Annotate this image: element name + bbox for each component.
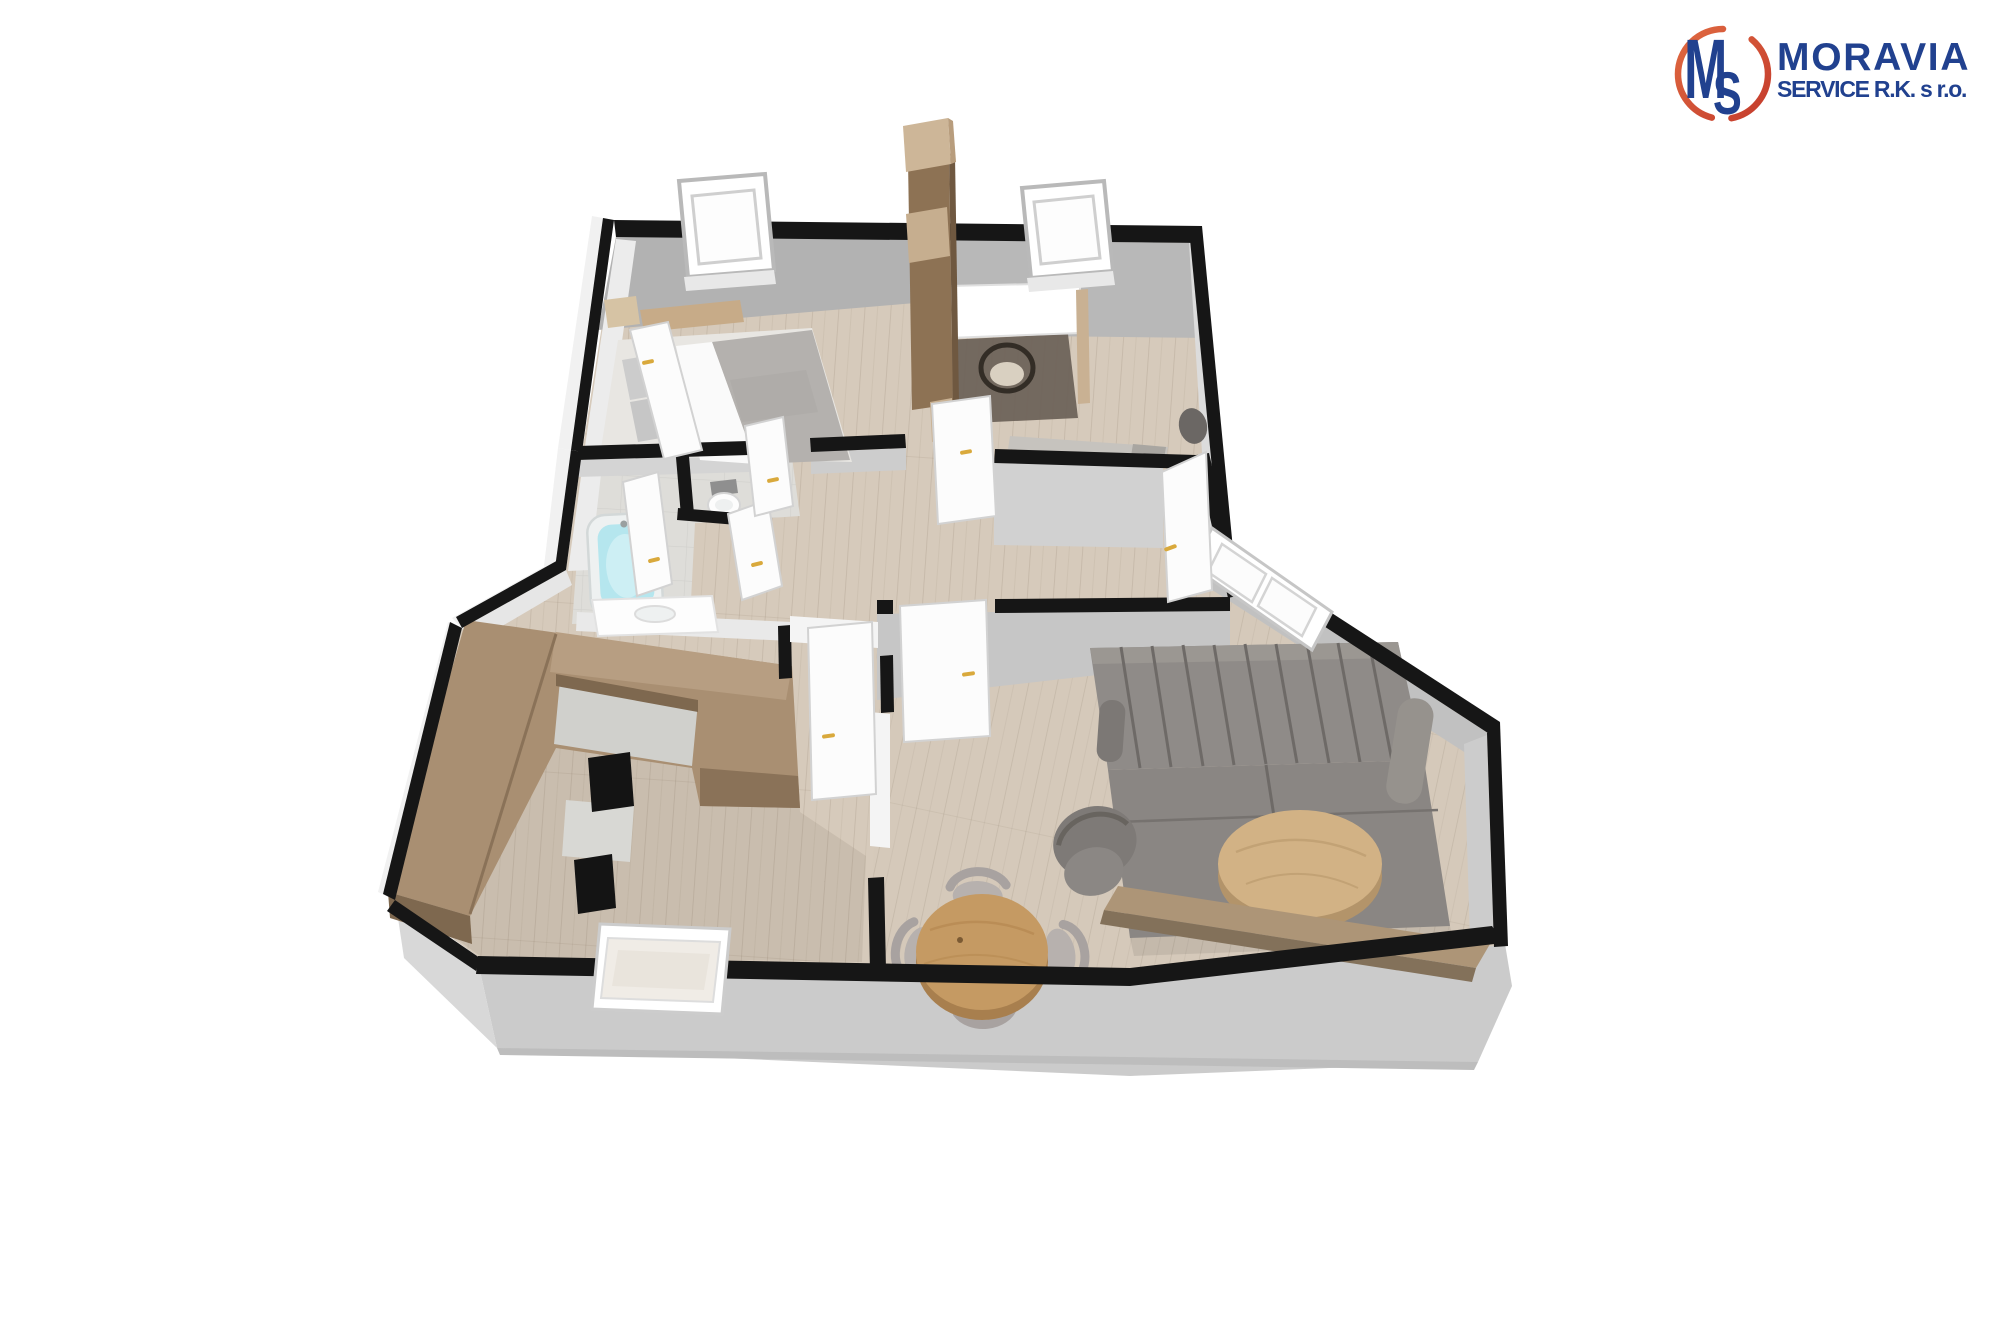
wardrobe-box-top: [903, 118, 951, 172]
door-leaf-kitchen: [808, 622, 876, 800]
nightstand: [604, 296, 640, 328]
dining-table: [916, 894, 1048, 1010]
washbasin: [635, 606, 675, 622]
office-window: [1022, 181, 1115, 292]
desk-side-panel: [1076, 289, 1090, 404]
built-in-oven: [588, 752, 634, 812]
wall-hall-living-a: [877, 600, 893, 614]
door-leaf-office: [1162, 452, 1212, 602]
desk: [948, 283, 1080, 338]
page: M S MORAVIA SERVICE R.K. s r.o.: [0, 0, 2000, 1334]
wall-hall-kitchen-b: [880, 655, 894, 713]
door-leaf-hall-b: [932, 396, 996, 524]
wardrobe-box-mid: [906, 207, 950, 263]
wardrobe-tall: [908, 153, 953, 410]
wall-kitchen-dining: [868, 877, 886, 971]
logo-monogram-s: S: [1713, 61, 1742, 128]
hall-office-face: [994, 463, 1163, 548]
door-leaf-living: [900, 600, 990, 742]
wall-hall-kitchen-a: [778, 625, 792, 679]
bedroom-window: [679, 174, 776, 291]
sofa-arm-pad: [1096, 699, 1126, 763]
logo-subtitle: SERVICE R.K. s r.o.: [1777, 76, 1968, 102]
logo-title: MORAVIA: [1777, 36, 1970, 79]
floorplan-render: M S MORAVIA SERVICE R.K. s r.o.: [0, 0, 2000, 1334]
built-in-appliance: [574, 854, 616, 914]
coffee-table: [1218, 810, 1382, 918]
wall-hall-living-b: [995, 597, 1230, 613]
company-logo: M S MORAVIA SERVICE R.K. s r.o.: [1678, 22, 1970, 127]
kitchen-window: [592, 924, 730, 1014]
desk-chair-seat: [990, 362, 1024, 386]
